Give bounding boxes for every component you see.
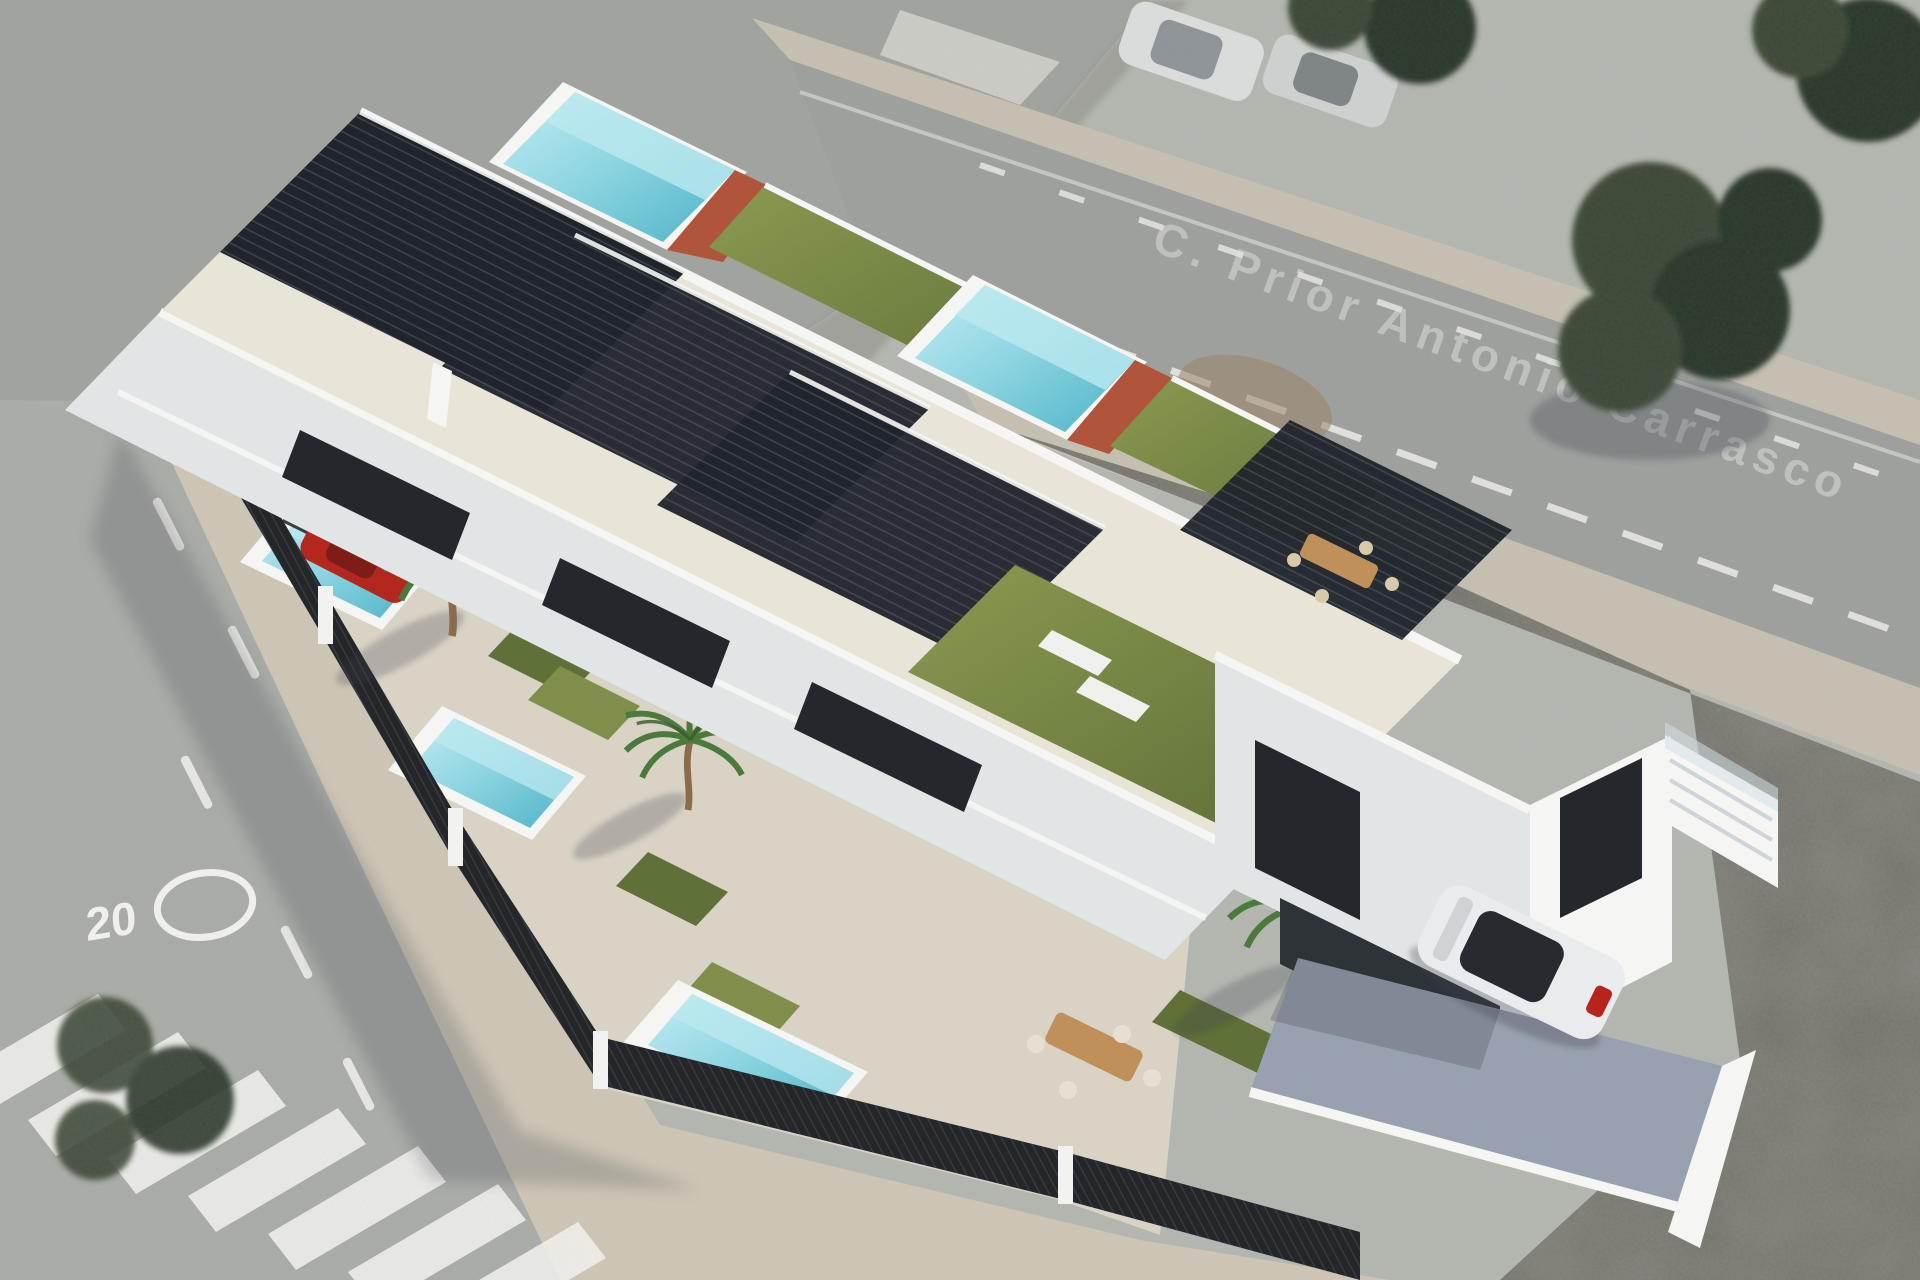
fence-post	[448, 808, 463, 866]
fence-post	[1058, 1146, 1073, 1204]
fence-post	[318, 586, 333, 644]
scene-canvas: C. Prior Antonio Carrasco	[0, 0, 1920, 1280]
aerial-render-scene: C. Prior Antonio Carrasco	[0, 0, 1920, 1280]
fence-post	[593, 1031, 608, 1089]
